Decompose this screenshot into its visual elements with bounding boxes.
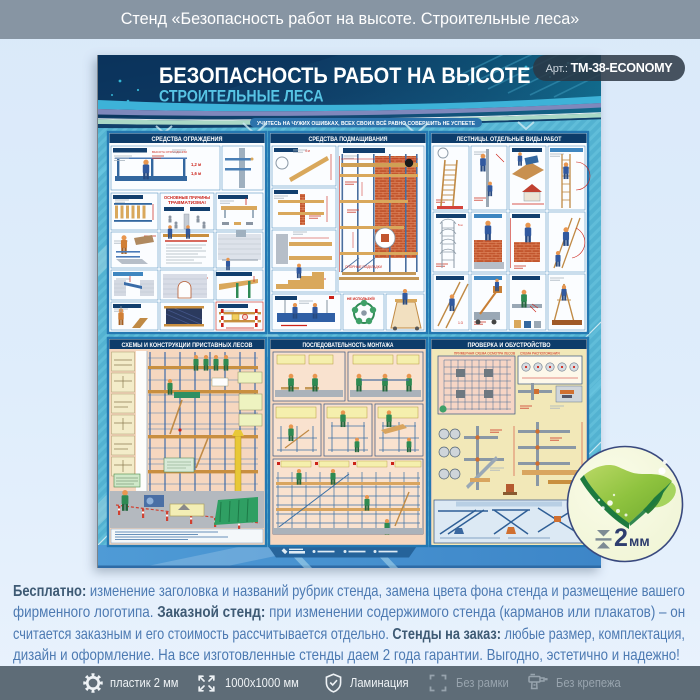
svg-text:ОПОРНЫЕ ПОДКЛАДКИ: ОПОРНЫЕ ПОДКЛАДКИ [345,265,383,269]
svg-text:1,2 м: 1,2 м [191,162,201,167]
svg-text:2: 2 [614,524,628,552]
svg-text:1,6 м: 1,6 м [191,171,201,176]
svg-text:ТРАВМАТИЗМА!: ТРАВМАТИЗМА! [168,200,207,205]
svg-text:5 м: 5 м [458,223,463,227]
svg-text:СТРОИТЕЛЬНЫЕ ЛЕСА: СТРОИТЕЛЬНЫЕ ЛЕСА [159,88,323,106]
svg-text:СРЕДСТВА ПОДМАЩИВАНИЯ: СРЕДСТВА ПОДМАЩИВАНИЯ [309,136,388,143]
svg-text:1:3: 1:3 [458,321,463,325]
svg-text:ПРИМЕРНАЯ СХЕМА ОСМОТРА ЛЕСОВ: ПРИМЕРНАЯ СХЕМА ОСМОТРА ЛЕСОВ [454,352,515,356]
svg-text:СХЕМЫ И КОНСТРУКЦИИ ПРИСТАВНЫХ: СХЕМЫ И КОНСТРУКЦИИ ПРИСТАВНЫХ ЛЕСОВ [122,342,253,349]
svg-text:БЕЗОПАСНОСТЬ РАБОТ НА ВЫСОТЕ: БЕЗОПАСНОСТЬ РАБОТ НА ВЫСОТЕ [159,63,530,88]
svg-text:ПРОВЕРКА И ОБУСТРОЙСТВО: ПРОВЕРКА И ОБУСТРОЙСТВО [468,340,551,349]
svg-text:УЧИТЕСЬ НА ЧУЖИХ ОШИБКАХ, ВСЕХ: УЧИТЕСЬ НА ЧУЖИХ ОШИБКАХ, ВСЕХ СВОИХ ВСЁ… [257,120,475,127]
svg-text:ЛЕСТНИЦЫ. ОТДЕЛЬНЫЕ ВИДЫ РАБОТ: ЛЕСТНИЦЫ. ОТДЕЛЬНЫЕ ВИДЫ РАБОТ [457,136,563,143]
svg-text:4 м: 4 м [305,149,310,153]
svg-text:СРЕДСТВА ОГРАЖДЕНИЯ: СРЕДСТВА ОГРАЖДЕНИЯ [152,136,223,143]
svg-text:НЕ ИСПОЛЬЗУЙ!: НЕ ИСПОЛЬЗУЙ! [347,297,375,301]
svg-text:СХЕМА РАСПОЛОЖЕНИЯ: СХЕМА РАСПОЛОЖЕНИЯ [520,352,560,356]
svg-text:мм: мм [629,533,650,549]
svg-text:ПОСЛЕДОВАТЕЛЬНОСТЬ МОНТАЖА: ПОСЛЕДОВАТЕЛЬНОСТЬ МОНТАЖА [303,342,394,349]
